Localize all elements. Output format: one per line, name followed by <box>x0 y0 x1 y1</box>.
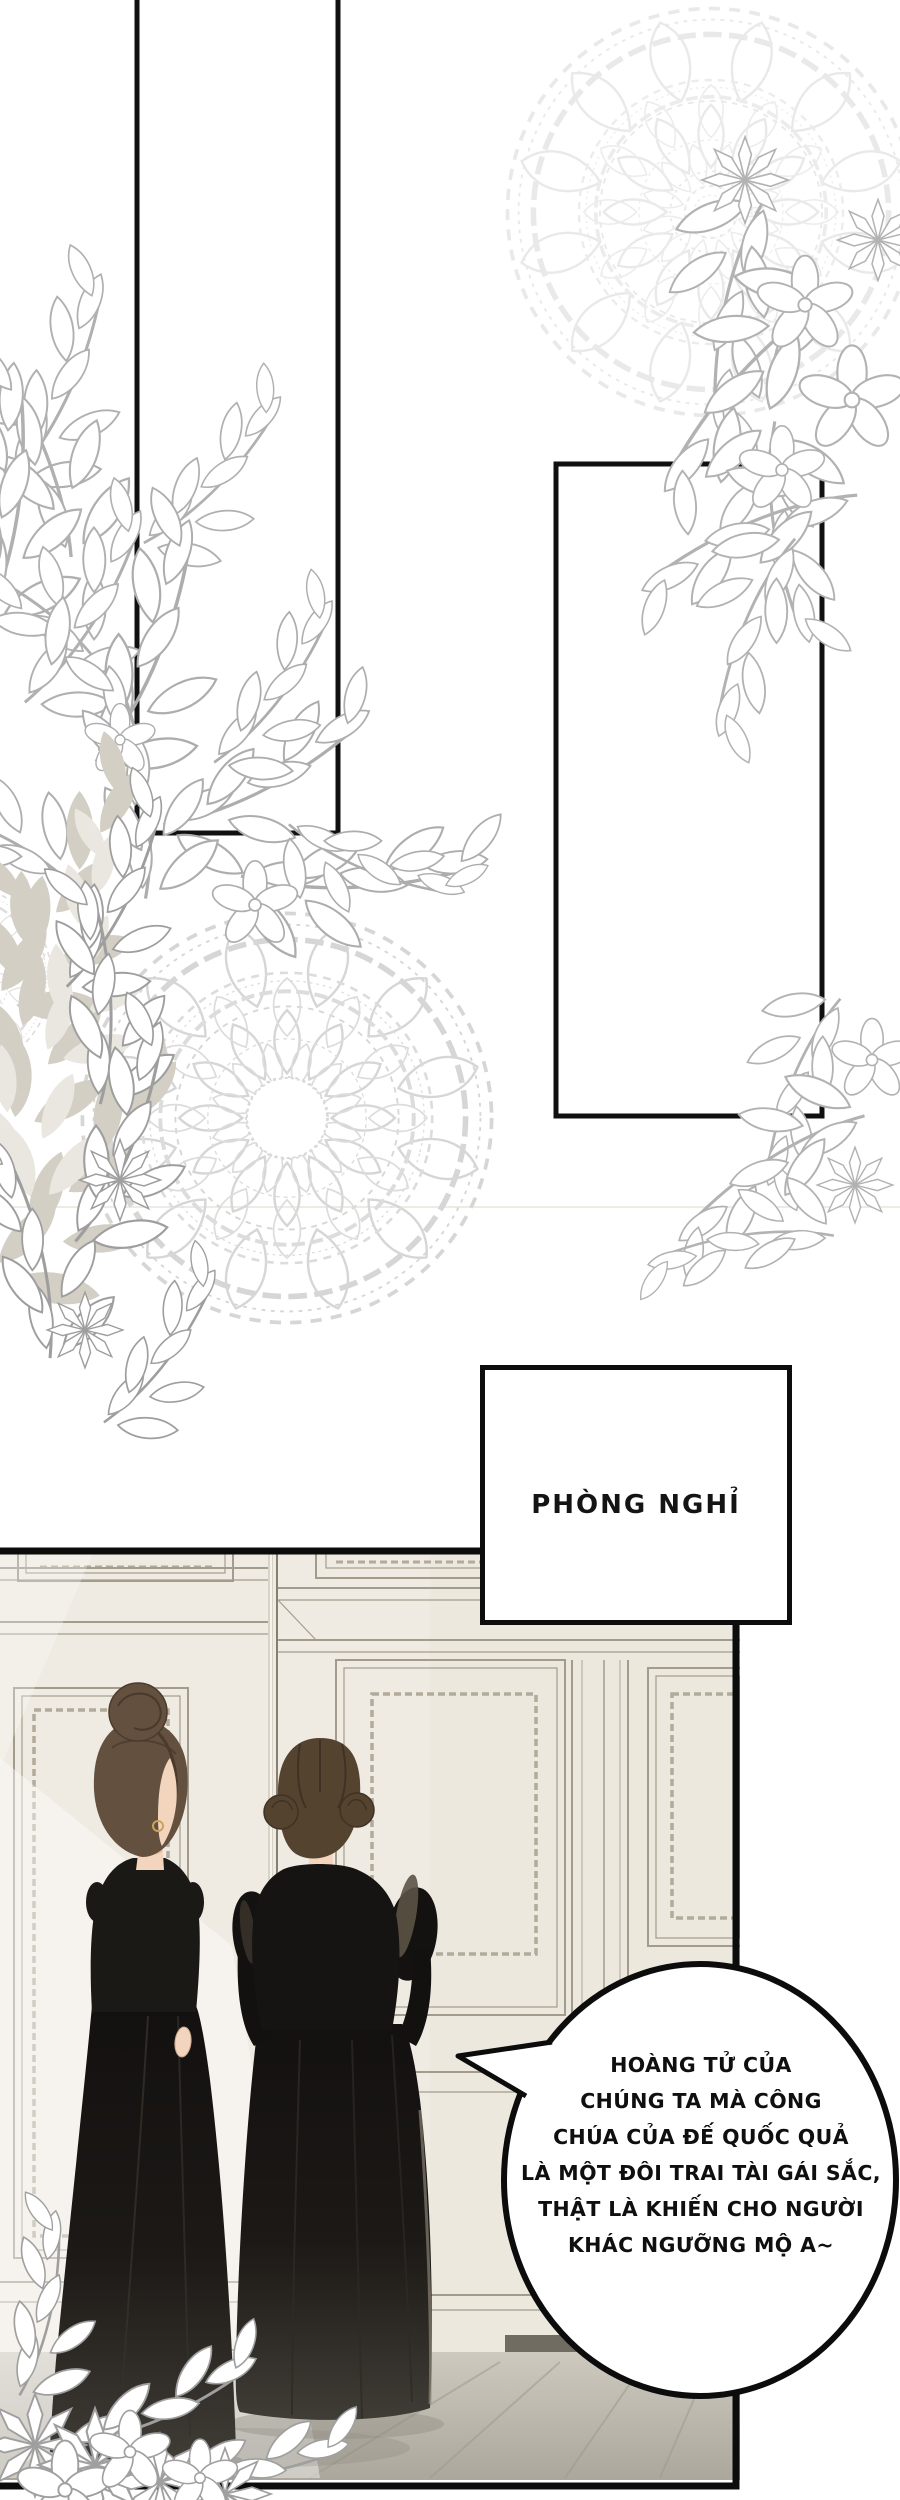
bubble-line: LÀ MỘT ĐÔI TRAI TÀI GÁI SẮC, <box>500 2155 900 2191</box>
maid-left-hair-bun <box>109 1683 167 1741</box>
maid-right-bun-right <box>340 1793 374 1827</box>
bubble-line: THẬT LÀ KHIẾN CHO NGƯỜI <box>500 2191 900 2227</box>
speech-bubble-text: HOÀNG TỬ CỦA CHÚNG TA MÀ CÔNG CHÚA CỦA Đ… <box>500 2047 900 2263</box>
comic-page: PHÒNG NGHỈ HOÀNG TỬ CỦA CHÚNG TA MÀ CÔNG… <box>0 0 900 2500</box>
bubble-line: HOÀNG TỬ CỦA <box>500 2047 900 2083</box>
room-label-text: PHÒNG NGHỈ <box>531 1490 741 1520</box>
bubble-line: CHÚA CỦA ĐẾ QUỐC QUẢ <box>500 2119 900 2155</box>
bubble-line: CHÚNG TA MÀ CÔNG <box>500 2083 900 2119</box>
maid-right-bodice <box>252 1864 399 2030</box>
room-label-box: PHÒNG NGHỈ <box>480 1365 792 1625</box>
maid-left-bodice <box>91 1858 200 2012</box>
bubble-line: KHÁC NGƯỠNG MỘ A~ <box>500 2227 900 2263</box>
